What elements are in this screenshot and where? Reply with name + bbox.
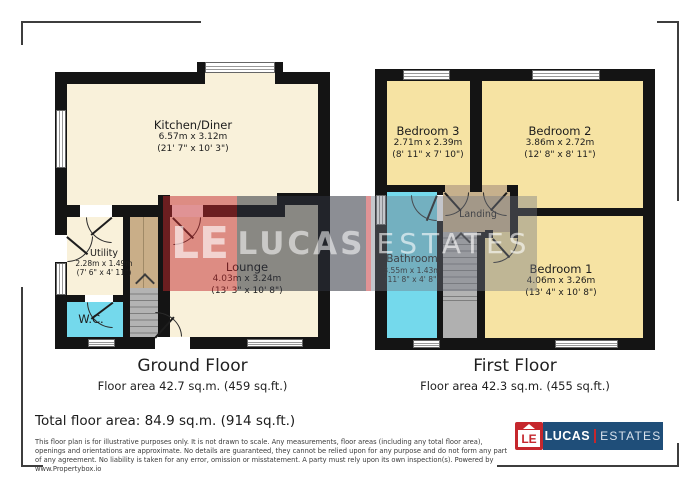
room-name: Bedroom 3 [392, 124, 463, 138]
room-label-wc: W.C. [78, 312, 103, 326]
logo-brand-text: LUCAS [545, 429, 591, 443]
floorplan-page: Kitchen/Diner 6.57m x 3.12m (21' 7" x 10… [0, 0, 700, 490]
room-dim-metric: 4.06m x 3.26m [525, 276, 596, 287]
frame-mark-bottom-left-v [21, 287, 23, 467]
floor-plan-ground: Kitchen/Diner 6.57m x 3.12m (21' 7" x 10… [55, 62, 330, 349]
room-name: Kitchen/Diner [154, 118, 232, 132]
wall [203, 205, 283, 217]
room-label-bedroom-3: Bedroom 3 2.71m x 2.39m (8' 11" x 7' 10"… [392, 124, 463, 161]
wall [318, 72, 330, 349]
logo-suffix-text: ESTATES [600, 429, 661, 443]
window-bathroom-side [376, 195, 386, 225]
window-kitchen-bay [205, 62, 275, 73]
logo-roof-icon [523, 424, 535, 429]
room-label-kitchen-diner: Kitchen/Diner 6.57m x 3.12m (21' 7" x 10… [154, 118, 232, 155]
total-floor-area: Total floor area: 84.9 sq.m. (914 sq.ft.… [35, 413, 295, 429]
logo-separator [594, 429, 596, 443]
ground-floor-title: Ground Floor [55, 356, 330, 376]
first-floor-area: Floor area 42.3 sq.m. (455 sq.ft.) [375, 379, 655, 393]
disclaimer-text: This floor plan is for illustrative purp… [35, 438, 513, 473]
room-dim-imperial: (13' 4" x 10' 8") [525, 288, 596, 299]
floor-plan-first: Bedroom 3 2.71m x 2.39m (8' 11" x 7' 10"… [375, 69, 655, 350]
room-dim-imperial: (11' 8" x 4' 8") [383, 275, 440, 284]
door-opening-front [155, 337, 190, 349]
window-bathroom-bottom [413, 340, 440, 348]
frame-mark-top-left-h [21, 21, 201, 23]
room-lounge-notch [283, 205, 318, 217]
lucas-estates-logo: LE LUCAS ESTATES [515, 422, 663, 450]
wall [643, 69, 655, 350]
room-kitchen-bay [205, 73, 275, 84]
room-name: Bedroom 1 [525, 262, 596, 276]
room-name: W.C. [78, 312, 103, 326]
logo-monogram-box: LE [515, 422, 543, 450]
ground-floor-area: Floor area 42.7 sq.m. (459 sq.ft.) [55, 379, 330, 393]
window-kitchen-side [56, 110, 66, 168]
room-dim-metric: 3.86m x 2.72m [524, 138, 595, 149]
wall [67, 205, 80, 217]
room-name: Bedroom 2 [524, 124, 595, 138]
window-lounge [247, 339, 303, 347]
door-opening-utility-entry [55, 235, 67, 262]
room-name: Landing [459, 209, 497, 220]
wall [283, 193, 318, 205]
room-label-landing: Landing [459, 209, 497, 220]
wall [67, 295, 85, 302]
window-bedroom-1 [555, 340, 618, 348]
room-name: Utility [75, 248, 132, 259]
frame-mark-top-right-h [657, 21, 679, 23]
wall [55, 72, 202, 84]
room-name: Lounge [211, 260, 282, 274]
room-dim-imperial: (8' 11" x 7' 10") [392, 150, 463, 161]
frame-mark-bottom-right-h [497, 465, 679, 467]
room-dim-metric: 4.03m x 3.24m [211, 274, 282, 285]
wall [470, 185, 482, 192]
room-dim-imperial: (13' 3" x 10' 8") [211, 286, 282, 297]
stairs-base-first [443, 300, 477, 338]
stairs-treads-ground [130, 288, 158, 337]
room-label-lounge: Lounge 4.03m x 3.24m (13' 3" x 10' 8") [211, 260, 282, 297]
window-bedroom-3 [403, 70, 450, 80]
room-label-bathroom: Bathroom 3.55m x 1.43m (11' 8" x 4' 8") [383, 253, 440, 284]
frame-mark-bottom-right-v [677, 443, 679, 467]
room-name: Bathroom [383, 253, 440, 266]
logo-monogram: LE [518, 430, 540, 447]
wall [485, 230, 493, 238]
wall [275, 62, 283, 84]
watermark-divider [366, 196, 371, 291]
wall-landing-right [510, 185, 518, 238]
wall [197, 62, 205, 84]
frame-mark-top-left-v [21, 21, 23, 45]
room-dim-metric: 3.55m x 1.43m [383, 266, 440, 275]
wall [277, 193, 285, 217]
room-dim-metric: 6.57m x 3.12m [154, 132, 232, 143]
room-dim-metric: 2.28m x 1.49m [75, 259, 132, 268]
wall-stairs-right [477, 232, 485, 338]
room-label-bedroom-1: Bedroom 1 4.06m x 3.26m (13' 4" x 10' 8"… [525, 262, 596, 299]
wall [113, 295, 123, 302]
room-label-bedroom-2: Bedroom 2 3.86m x 2.72m (12' 8" x 8' 11"… [524, 124, 595, 161]
room-dim-imperial: (7' 6" x 4' 11") [75, 268, 132, 277]
first-floor-title: First Floor [375, 356, 655, 376]
wall-bed3-bed2 [470, 81, 482, 185]
window-wc [88, 339, 115, 347]
room-dim-imperial: (21' 7" x 10' 3") [154, 144, 232, 155]
wall [437, 185, 443, 195]
wall-bed2-bed1 [518, 208, 643, 216]
window-bedroom-2 [532, 70, 600, 80]
frame-mark-top-right-v [677, 21, 679, 201]
window-utility-side [56, 263, 66, 295]
room-dim-imperial: (12' 8" x 8' 11") [524, 150, 595, 161]
room-label-utility: Utility 2.28m x 1.49m (7' 6" x 4' 11") [75, 248, 132, 277]
logo-wordmark: LUCAS ESTATES [543, 422, 663, 450]
room-dim-metric: 2.71m x 2.39m [392, 138, 463, 149]
